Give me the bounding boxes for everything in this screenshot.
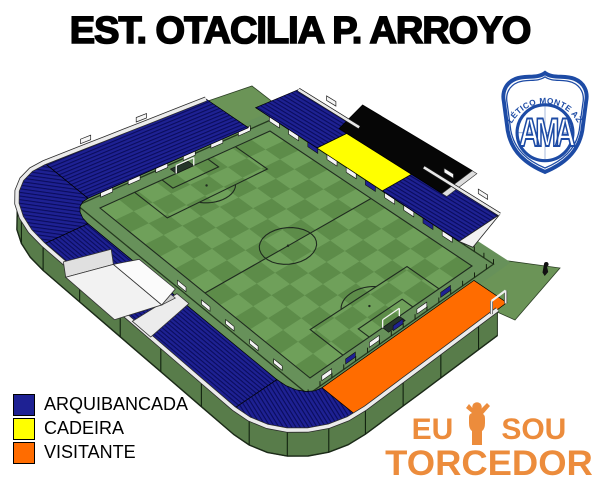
watermark-word-eu: EU bbox=[412, 416, 454, 445]
club-badge: ATLÉTICO MONTE AZUL AMA bbox=[496, 68, 594, 176]
watermark-word-sou: SOU bbox=[501, 416, 566, 445]
page: EST. OTACILIA P. ARROYO ARQUIBANCADA CAD… bbox=[0, 0, 600, 500]
visitante-label: VISITANTE bbox=[44, 442, 136, 463]
cadeira-swatch bbox=[13, 418, 35, 440]
badge-monogram: AMA bbox=[519, 112, 575, 155]
visitante-swatch bbox=[13, 442, 35, 464]
cheering-fan-icon bbox=[457, 401, 497, 445]
watermark: EU SOU TORCEDOR bbox=[384, 401, 594, 480]
legend-row-cadeira: CADEIRA bbox=[13, 418, 188, 439]
arquibancada-label: ARQUIBANCADA bbox=[44, 394, 188, 415]
cadeira-label: CADEIRA bbox=[44, 418, 124, 439]
legend-row-arquibancada: ARQUIBANCADA bbox=[13, 394, 188, 415]
arquibancada-swatch bbox=[13, 394, 35, 416]
legend: ARQUIBANCADA CADEIRA VISITANTE bbox=[13, 394, 188, 466]
watermark-word-torcedor: TORCEDOR bbox=[380, 447, 598, 480]
legend-row-visitante: VISITANTE bbox=[13, 442, 188, 463]
page-title: EST. OTACILIA P. ARROYO bbox=[0, 10, 600, 53]
